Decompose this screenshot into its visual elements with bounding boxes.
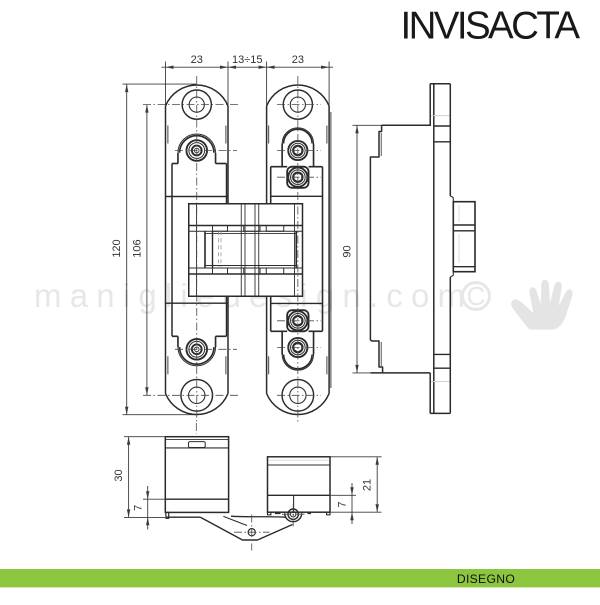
svg-text:C: C xyxy=(467,281,486,311)
svg-text:106: 106 xyxy=(131,239,143,257)
svg-text:21: 21 xyxy=(362,479,374,491)
svg-text:7: 7 xyxy=(133,505,145,511)
svg-text:DISEGNO: DISEGNO xyxy=(457,572,515,586)
svg-text:INVISACTA: INVISACTA xyxy=(401,5,581,48)
svg-text:7: 7 xyxy=(337,501,349,507)
svg-text:13÷15: 13÷15 xyxy=(232,54,263,66)
svg-text:23: 23 xyxy=(191,54,203,66)
svg-text:30: 30 xyxy=(113,469,125,481)
svg-text:23: 23 xyxy=(292,54,304,66)
svg-text:120: 120 xyxy=(111,239,123,257)
svg-text:90: 90 xyxy=(342,245,354,257)
